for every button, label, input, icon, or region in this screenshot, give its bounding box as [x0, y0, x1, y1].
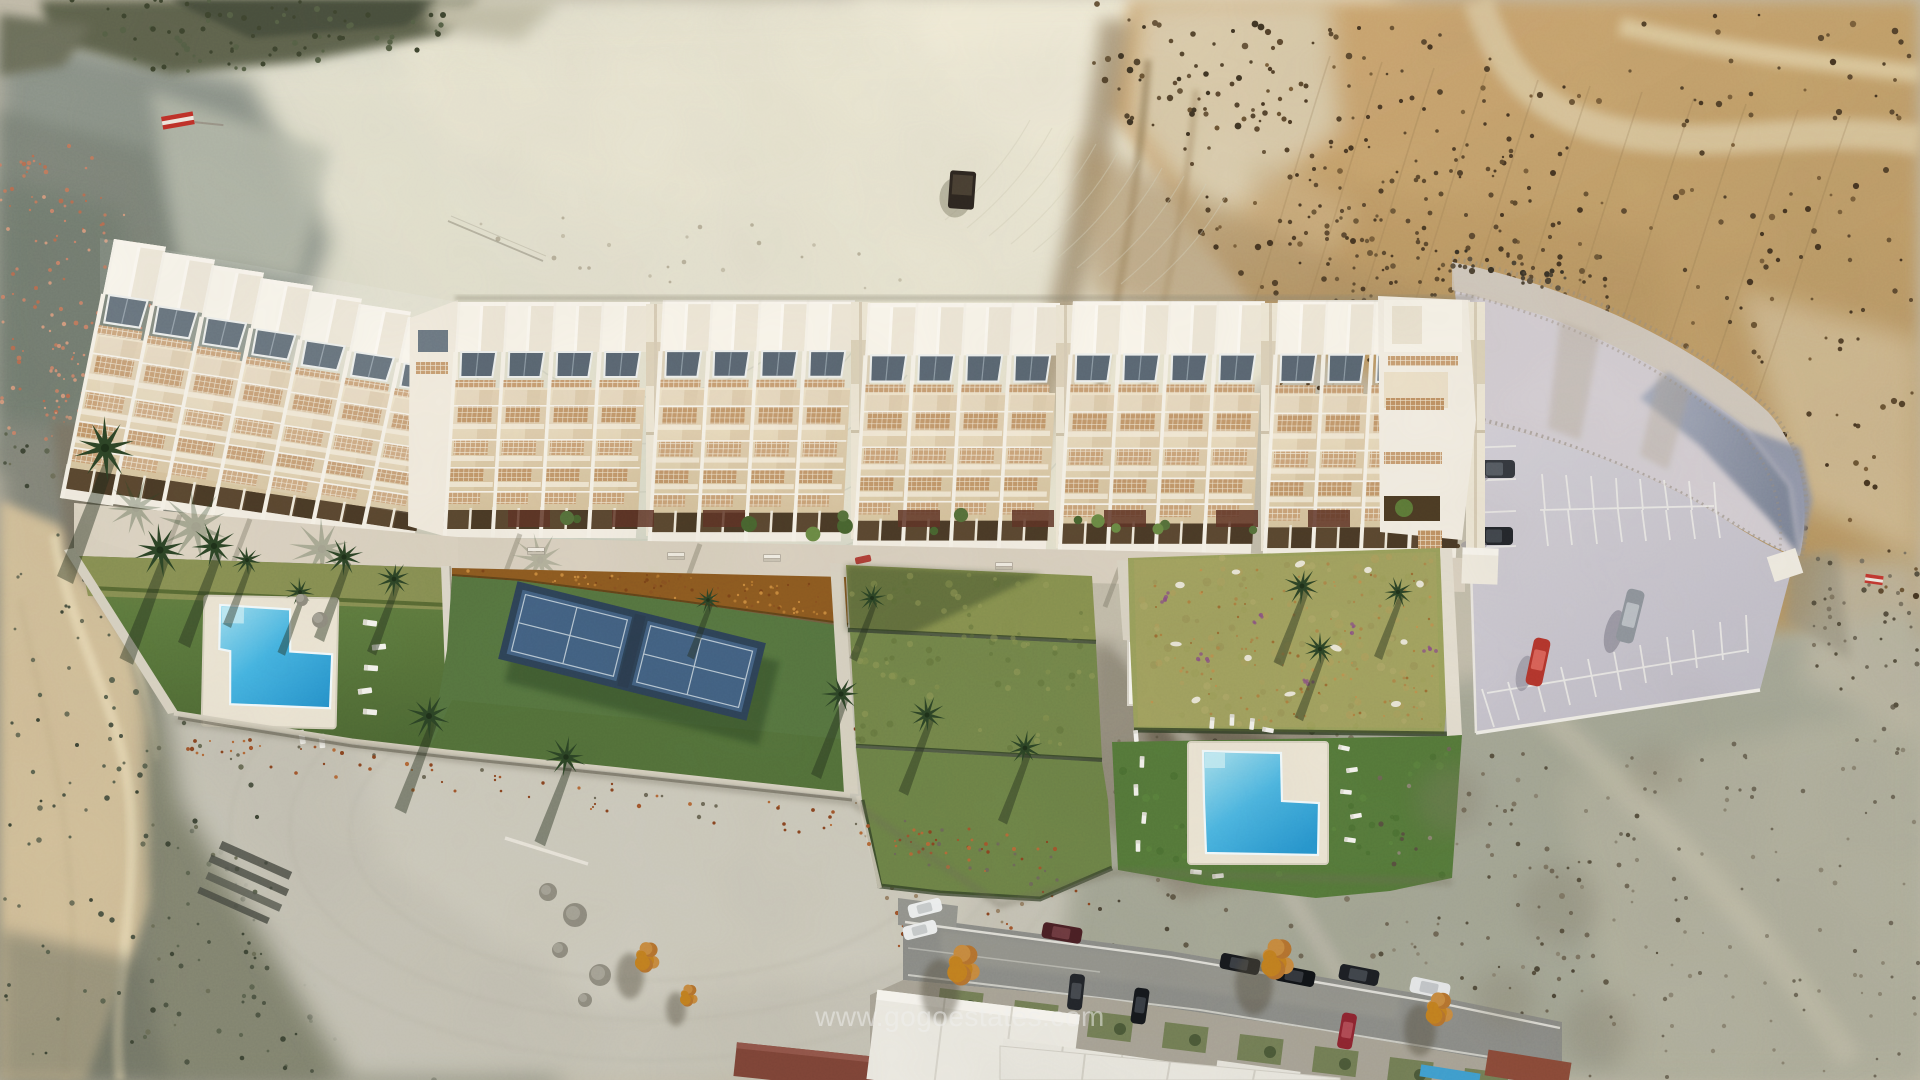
svg-text:www.gogoestates.com: www.gogoestates.com	[814, 1001, 1105, 1032]
